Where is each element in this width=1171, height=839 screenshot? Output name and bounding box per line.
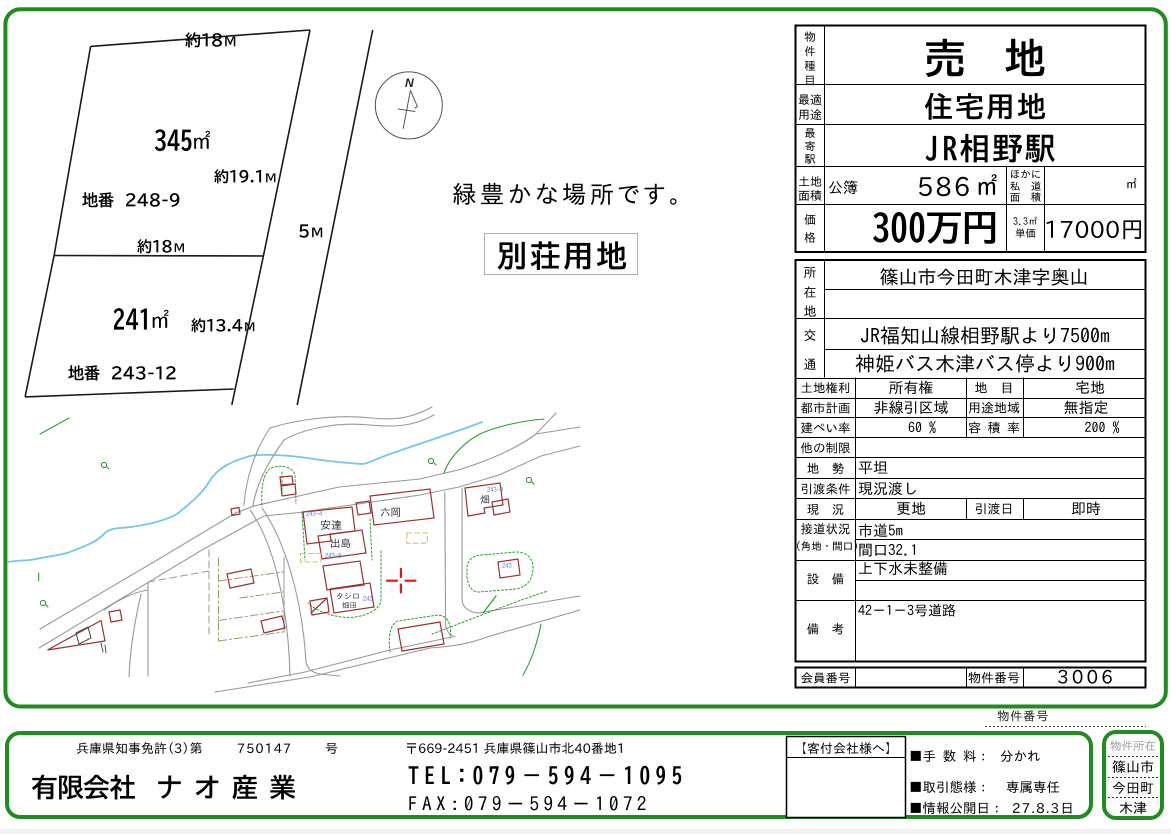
svg-text:N: N [405, 76, 414, 90]
